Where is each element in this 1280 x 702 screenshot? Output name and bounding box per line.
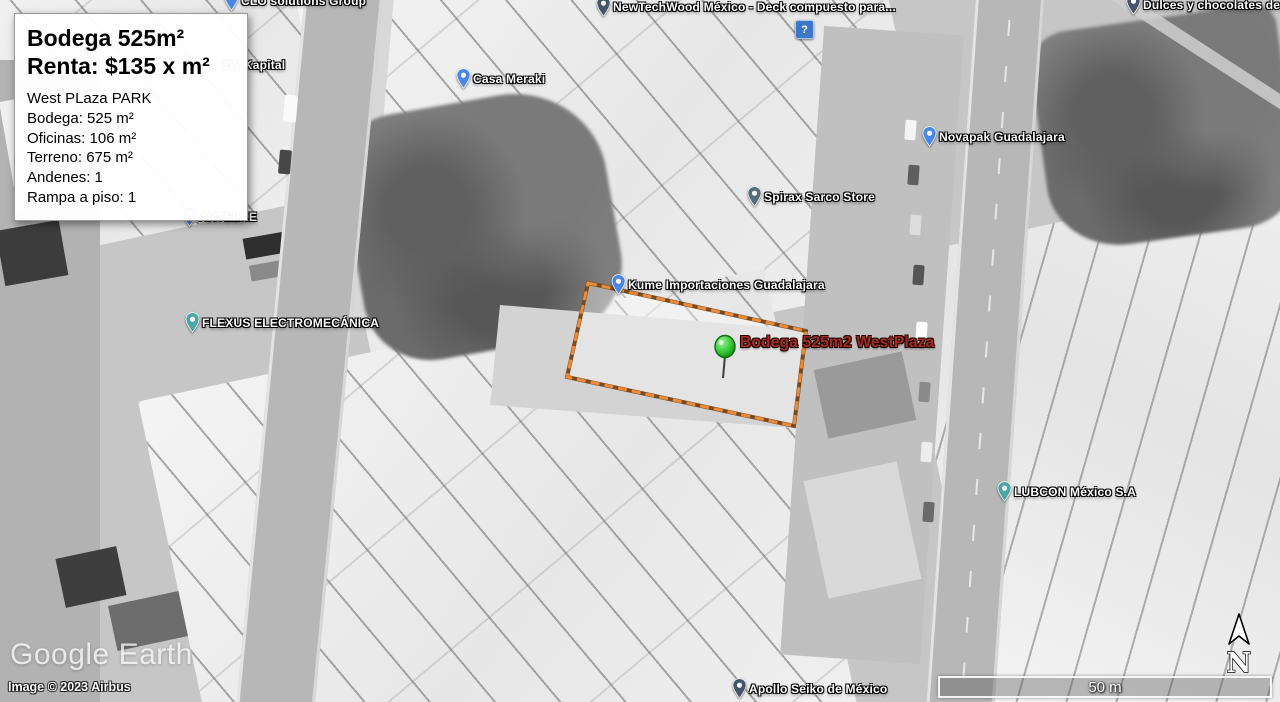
placemark-dulces-y-chocolates[interactable]: Dulces y chocolates de occid xyxy=(1126,0,1280,15)
map-pin-icon xyxy=(596,0,611,17)
listing-info-box: Bodega 525m² Renta: $135 x m² West PLaza… xyxy=(14,13,248,221)
placemark-spirax-sarco[interactable]: Spirax Sarco Store xyxy=(747,186,875,207)
placemark-apollo-seiko[interactable]: Apollo Seiko de México xyxy=(732,678,887,699)
help-button[interactable]: ? xyxy=(795,20,814,39)
google-earth-logo: Google Earth xyxy=(10,638,193,672)
placemark-label: Apollo Seiko de México xyxy=(749,682,887,696)
listing-bodega-area: Bodega: 525 m² xyxy=(27,109,235,129)
map-pin-icon xyxy=(732,678,747,699)
listing-rampa: Rampa a piso: 1 xyxy=(27,188,235,208)
placemark-novapak[interactable]: Novapak Guadalajara xyxy=(922,126,1065,147)
map-viewport[interactable]: CLO solutions Group NewTechWood México -… xyxy=(0,0,1280,702)
map-pin-icon xyxy=(456,68,471,89)
placemark-label: Kume Importaciones Guadalajara xyxy=(628,278,825,292)
placemark-label: Novapak Guadalajara xyxy=(939,130,1065,144)
dark-building xyxy=(0,220,68,286)
placemark-flexus[interactable]: FLEXUS ELECTROMECÁNICA xyxy=(185,312,379,333)
listing-andenes: Andenes: 1 xyxy=(27,168,235,188)
map-pin-icon xyxy=(997,481,1012,502)
imagery-attribution: Image © 2023 Airbus xyxy=(8,680,131,694)
map-pin-icon xyxy=(224,0,239,11)
placemark-label: Casa Meraki xyxy=(473,72,545,86)
placemark-kume-importaciones[interactable]: Kume Importaciones Guadalajara xyxy=(611,274,825,295)
placemark-label: Dulces y chocolates de occid xyxy=(1143,0,1280,12)
placemark-label: Spirax Sarco Store xyxy=(764,190,875,204)
map-pin-icon xyxy=(1126,0,1141,15)
green-pushpin-icon[interactable] xyxy=(710,334,740,380)
placemark-label: FLEXUS ELECTROMECÁNICA xyxy=(202,316,379,330)
placemark-label: CLO solutions Group xyxy=(241,0,366,8)
listing-park-name: West PLaza PARK xyxy=(27,89,235,109)
scale-bar-label: 50 m xyxy=(1088,679,1121,696)
placemark-lubcon[interactable]: LUBCON México S.A xyxy=(997,481,1136,502)
listing-title: Bodega 525m² xyxy=(27,24,235,52)
placemark-newtechwood[interactable]: NewTechWood México - Deck compuesto para… xyxy=(596,0,896,17)
placemark-label: NewTechWood México - Deck compuesto para… xyxy=(613,0,896,14)
north-letter: N xyxy=(1227,648,1252,679)
listing-oficinas-area: Oficinas: 106 m² xyxy=(27,129,235,149)
listing-price: Renta: $135 x m² xyxy=(27,52,235,80)
map-pin-icon xyxy=(611,274,626,295)
placemark-label: LUBCON México S.A xyxy=(1014,485,1136,499)
map-pin-icon xyxy=(747,186,762,207)
placemark-casa-meraki[interactable]: Casa Meraki xyxy=(456,68,545,89)
north-arrow-icon: N xyxy=(1220,612,1258,682)
parcel-label[interactable]: Bodega 525m2 WestPlaza xyxy=(740,334,935,352)
listing-terreno-area: Terreno: 675 m² xyxy=(27,148,235,168)
map-pin-icon xyxy=(185,312,200,333)
placemark-clo-solutions-group[interactable]: CLO solutions Group xyxy=(224,0,366,11)
map-pin-icon xyxy=(922,126,937,147)
